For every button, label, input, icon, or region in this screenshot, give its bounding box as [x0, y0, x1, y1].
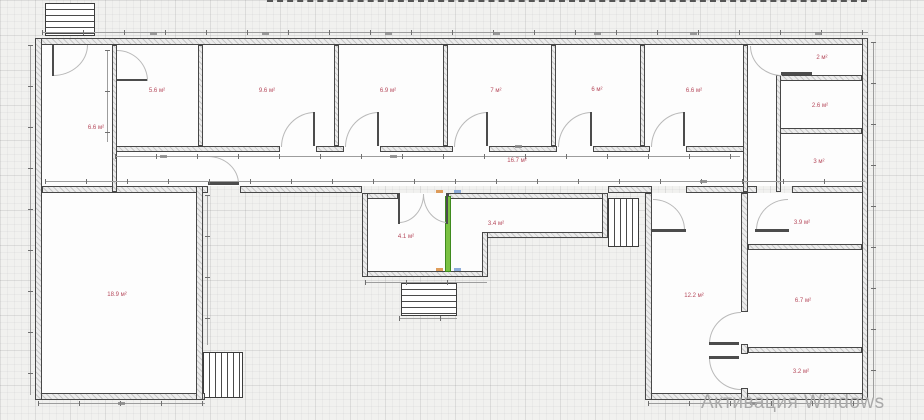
door-leaf[interactable] [683, 112, 685, 146]
room-area-label: 9.6 м² [259, 88, 275, 94]
dimension-line [871, 42, 876, 398]
wall[interactable] [743, 45, 748, 192]
wall[interactable] [362, 193, 368, 277]
room-area-label: 3.9 м² [794, 220, 810, 226]
dimension-line [42, 30, 868, 35]
dimension-line [365, 280, 487, 285]
wall[interactable] [741, 193, 748, 312]
room-area-label: 4.1 м² [398, 234, 414, 240]
dimension-number [150, 32, 157, 35]
room-area-label: 6 м² [591, 87, 602, 93]
wall[interactable] [35, 38, 868, 45]
wall[interactable] [551, 45, 556, 146]
dimension-number [515, 145, 522, 148]
room-area-label: 6.7 м² [795, 298, 811, 304]
dimension-line [45, 179, 865, 184]
wall[interactable] [748, 244, 862, 250]
wall[interactable] [448, 193, 608, 199]
room-area-label: 12.2 м² [684, 293, 703, 299]
wall[interactable] [645, 193, 652, 400]
floor-top-band[interactable] [42, 45, 862, 186]
room-area-label: 6.9 м² [380, 88, 396, 94]
wall[interactable] [362, 271, 488, 277]
wall[interactable] [380, 146, 453, 152]
dimension-number [594, 32, 601, 35]
dimension-line [399, 316, 457, 321]
room-area-label: 7 м² [490, 88, 501, 94]
door-leaf[interactable] [709, 356, 739, 359]
dimension-number [160, 155, 167, 158]
door-leaf[interactable] [377, 112, 379, 146]
room-area-label: 3.2 м² [793, 369, 809, 375]
dimension-number [390, 155, 397, 158]
wall[interactable] [482, 232, 488, 277]
door-leaf[interactable] [486, 112, 488, 146]
room-area-label: 3 м² [813, 159, 824, 165]
floorplan-canvas: 6.6 м² 5.6 м² 9.6 м² 6.9 м² 7 м² 6 м² 6.… [0, 0, 924, 420]
wall[interactable] [862, 38, 868, 400]
wall[interactable] [602, 193, 608, 238]
wall[interactable] [482, 232, 608, 238]
wall[interactable] [741, 344, 748, 354]
dimension-number [700, 180, 707, 183]
door-leaf[interactable] [117, 79, 147, 81]
stairs-mid-porch[interactable] [401, 283, 457, 316]
wall[interactable] [776, 75, 862, 81]
room-area-label: 6.6 м² [88, 125, 104, 131]
stairs-bottom-left[interactable] [203, 352, 243, 398]
door-leaf[interactable] [398, 193, 400, 224]
door-leaf[interactable] [590, 112, 592, 146]
dimension-number-selected [454, 190, 461, 193]
wall[interactable] [42, 186, 208, 193]
dimension-number-selected [454, 268, 461, 271]
page-boundary-dashes [267, 0, 867, 2]
dimension-line [28, 45, 33, 395]
wall[interactable] [198, 45, 203, 146]
wall[interactable] [112, 146, 280, 152]
dimension-number [493, 32, 500, 35]
room-area-label: 2.6 м² [812, 103, 828, 109]
wall[interactable] [640, 45, 645, 146]
wall[interactable] [593, 146, 650, 152]
wall[interactable] [792, 186, 868, 193]
wall[interactable] [776, 128, 862, 134]
dimension-number [815, 32, 822, 35]
dimension-number [385, 32, 392, 35]
wall[interactable] [776, 75, 781, 192]
room-area-label: 6.6 м² [686, 88, 702, 94]
door-leaf[interactable] [755, 229, 789, 232]
door-leaf[interactable] [781, 72, 812, 75]
door-leaf[interactable] [709, 342, 739, 345]
wall[interactable] [240, 186, 362, 193]
dimension-line [205, 195, 210, 345]
wall[interactable] [316, 146, 344, 152]
windows-activation-watermark: Активация Windows [701, 392, 885, 414]
dimension-number [690, 32, 697, 35]
wall[interactable] [608, 186, 652, 193]
room-area-label: 2 м² [816, 55, 827, 61]
floor-big-left-room[interactable] [42, 186, 196, 393]
dimension-number-selected [436, 268, 443, 271]
dimension-number [118, 402, 125, 405]
room-area-label: 3.4 м² [488, 221, 504, 227]
stairs-right-mid[interactable] [608, 198, 639, 247]
room-area-label: 18.9 м² [107, 292, 126, 298]
wall[interactable] [686, 146, 748, 152]
wall[interactable] [334, 45, 339, 146]
wall[interactable] [443, 45, 448, 146]
door-leaf[interactable] [652, 229, 686, 232]
door-leaf[interactable] [313, 112, 315, 146]
room-area-label: 16.7 м² [507, 158, 526, 164]
room-area-label: 5.6 м² [149, 88, 165, 94]
door-leaf[interactable] [52, 45, 54, 76]
wall[interactable] [35, 393, 205, 400]
wall[interactable] [35, 38, 42, 400]
wall[interactable] [489, 146, 557, 152]
wall[interactable] [748, 347, 862, 353]
dimension-number-selected [436, 190, 443, 193]
dimension-line [105, 50, 110, 142]
wall[interactable] [196, 186, 203, 400]
door-leaf[interactable] [446, 193, 448, 224]
dimension-line [115, 154, 740, 159]
dimension-number [262, 32, 269, 35]
